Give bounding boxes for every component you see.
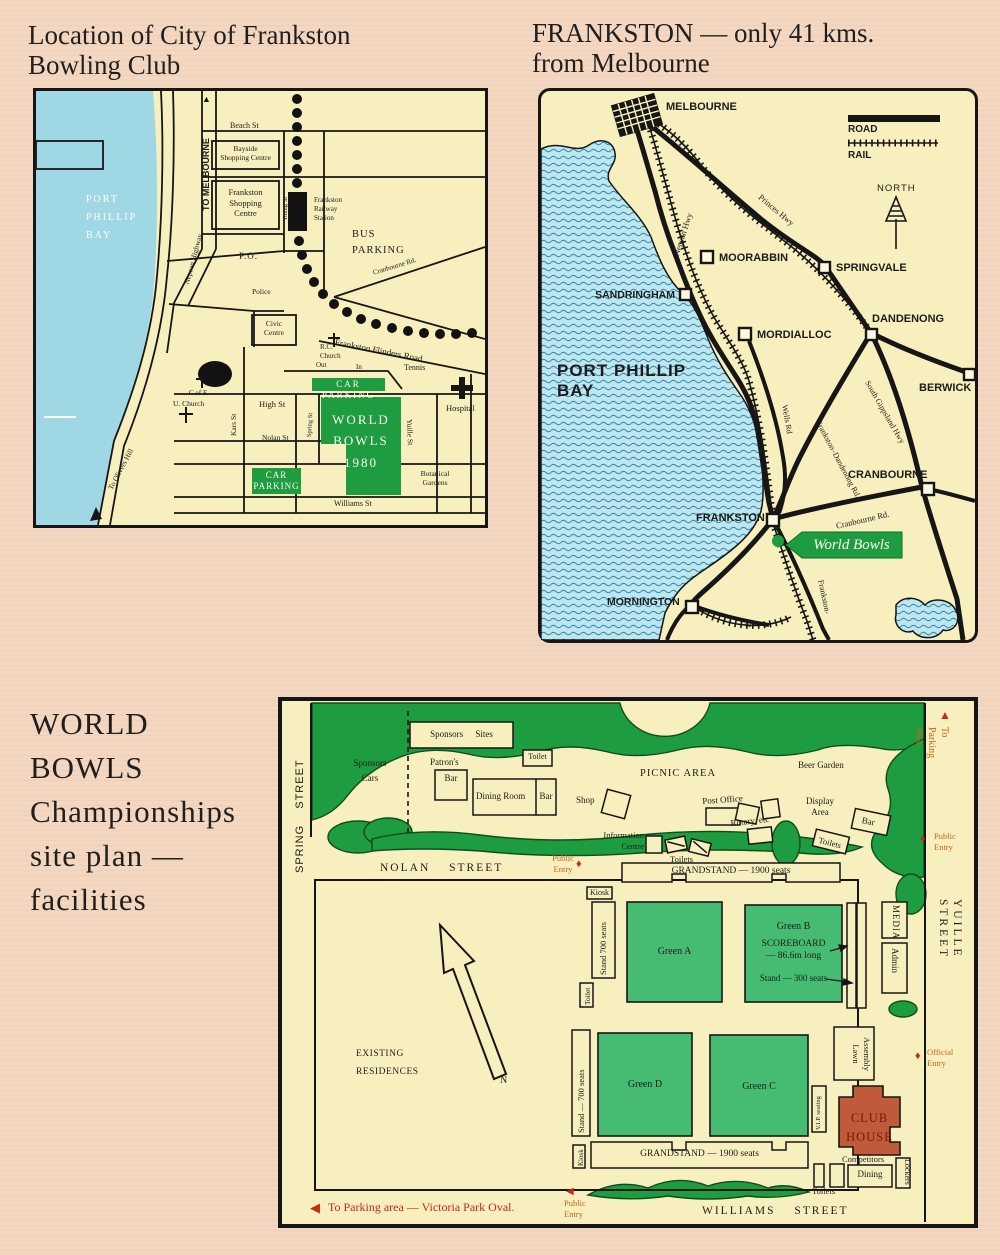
map2-label-mordialloc: MORDIALLOC: [757, 329, 832, 343]
map2-label-cranbourne: CRANBOURNE: [848, 469, 927, 483]
siteplan-public-entry-right-label: Public Entry: [934, 831, 956, 852]
map2-label-north: NORTH: [877, 183, 916, 195]
map1-label-po: P.O.: [239, 251, 258, 262]
map1-label-frankston-shopping: Frankston Shopping Centre: [212, 187, 279, 219]
siteplan-public-entry-bottom-arrow-icon: ◀: [566, 1187, 574, 1197]
map1-label-high-st: High St: [259, 399, 285, 410]
siteplan-grandstand-north-label: GRANDSTAND — 1900 seats: [622, 866, 840, 878]
siteplan-label-patrons-bar: Bar: [435, 773, 467, 784]
siteplan-label-kiosk-south: Kiosk: [577, 1149, 586, 1166]
map1-label-police: Police: [252, 287, 271, 296]
siteplan-public-entry-top-label: Public Entry: [548, 853, 578, 874]
map1-label-to-melbourne: TO MELBOURNE: [201, 138, 212, 211]
siteplan-official-entry-marker-icon: ♦: [915, 1051, 921, 1062]
siteplan-label-lockers: Lockers: [902, 1159, 912, 1185]
map1-label-car-parking-lower: CAR PARKING: [252, 470, 301, 493]
siteplan-title: WORLD BOWLS Championships site plan — fa…: [30, 702, 236, 922]
map1-label-beach-st: Beach St: [230, 121, 259, 131]
siteplan-label-scoreboard: SCOREBOARD — 86.6m long: [745, 939, 842, 963]
map2-label-dandenong: DANDENONG: [872, 313, 944, 327]
siteplan-label-stand-700-north: Stand 700 seats: [598, 922, 609, 975]
siteplan-label-williams-street: WILLIAMS STREET: [702, 1204, 849, 1218]
map2-title-line1: FRANKSTON — only 41 kms.: [532, 18, 874, 49]
siteplan-to-parking-bottom-arrow-icon: ◀: [310, 1201, 320, 1214]
siteplan-public-entry-bottom-label: Public Entry: [564, 1198, 586, 1219]
map1-label-hospital: Hospital: [446, 403, 475, 414]
map2-panel: MELBOURNE MOORABBIN SPRINGVALE SANDRINGH…: [538, 88, 978, 643]
siteplan-label-toilets-south: Toilets: [812, 1186, 835, 1197]
map1-label-civic-centre: Civic Centre: [252, 319, 296, 338]
siteplan-label-media: MEDIA: [890, 905, 901, 940]
map1-label-kars-st: Kars St: [229, 414, 238, 436]
map2-label-bay: PORT PHILLIP BAY: [557, 361, 686, 402]
map2-north-arrow: [886, 197, 906, 249]
siteplan-label-shop: Shop: [576, 795, 595, 806]
map1-label-out: Out: [316, 361, 327, 370]
map1-label-in: In: [356, 363, 362, 372]
siteplan-label-sponsors-sites: Sponsors Sites: [410, 729, 513, 740]
siteplan-public-entry-right-marker-icon: ♦: [920, 834, 926, 845]
siteplan-label-info-centre: Information Centre: [586, 830, 644, 851]
brochure-page: Location of City of Frankston Bowling Cl…: [0, 0, 1000, 1255]
siteplan-label-beer-garden: Beer Garden: [798, 760, 844, 771]
siteplan-label-kiosk-north: Kiosk: [587, 888, 612, 898]
siteplan-to-parking-right-label: To Parking area: [913, 727, 951, 758]
map2-label-sandringham: SANDRINGHAM: [589, 289, 675, 302]
map2-legend-road-swatch: [848, 115, 940, 122]
map1-label-bayside: Bayside Shopping Centre: [212, 144, 279, 163]
map2-label-springvale: SPRINGVALE: [836, 262, 907, 276]
siteplan-label-yuille-street: YUILLE STREET: [935, 899, 964, 959]
siteplan-label-display-area: Display Area: [800, 796, 840, 819]
map1-label-u-church: U. Church: [173, 399, 204, 408]
map1-label-spring-st: Spring St: [306, 413, 315, 438]
map2-label-mornington: MORNINGTON: [607, 596, 680, 609]
siteplan-label-patrons: Patron's: [430, 757, 459, 768]
map1-label-railway-station: Frankston Railway Station: [314, 196, 342, 222]
siteplan-label-sponsors-cars: Sponsors Cars: [340, 756, 400, 787]
siteplan-label-toilet-north: Toilet: [523, 752, 552, 762]
siteplan-label-green-d: Green D: [598, 1079, 692, 1092]
map2-legend-road-label: ROAD: [848, 124, 877, 137]
siteplan-label-spring-street: SPRING STREET: [294, 759, 308, 873]
map1-label-c-of-e: C of E: [189, 389, 207, 398]
map1-label-bay: PORT PHILLIP BAY: [86, 191, 146, 245]
siteplan-official-entry-label: Official Entry: [927, 1047, 953, 1068]
siteplan-panel: SPRING STREET NOLAN STREET YUILLE STREET…: [278, 697, 978, 1228]
siteplan-label-nolan-street: NOLAN STREET: [380, 861, 503, 875]
map2-label-frankston: FRANKSTON: [696, 512, 765, 526]
siteplan-to-parking-bottom-label: To Parking area — Victoria Park Oval.: [328, 1200, 515, 1215]
map1-railway-station-block: [288, 192, 307, 231]
siteplan-label-green-b: Green B: [745, 921, 842, 934]
map1-label-world-bowls: WORLD BOWLS 1980: [321, 409, 401, 473]
map2-title-line2: from Melbourne: [532, 48, 710, 79]
map2-label-moorabbin: MOORABBIN: [719, 252, 788, 266]
map1-label-williams-st: Williams St: [334, 499, 372, 509]
map2-world-bowls-label: World Bowls: [799, 536, 904, 555]
map1-oval: [198, 361, 232, 387]
siteplan-greens: [598, 902, 842, 1136]
map1-panel: PORT PHILLIP BAY ▲ TO MELBOURNE Beach St…: [33, 88, 488, 528]
siteplan-label-existing-residences: EXISTING RESIDENCES: [356, 1045, 419, 1081]
siteplan-grandstand-south-label: GRANDSTAND — 1900 seats: [591, 1149, 808, 1161]
siteplan-public-entry-top-marker-icon: ♦: [576, 859, 582, 870]
map1-label-nolan-st: Nolan St: [262, 433, 288, 442]
siteplan-label-north-n: N: [500, 1075, 507, 1088]
siteplan-label-dining-room: Dining Room: [476, 791, 525, 802]
map1-label-tennis: Tennis: [404, 363, 425, 373]
siteplan-label-dining-bar: Bar: [536, 791, 556, 802]
siteplan-label-picnic-area: PICNIC AREA: [640, 767, 716, 780]
siteplan-label-dining: Dining: [848, 1169, 892, 1180]
siteplan-to-parking-right-arrow-icon: ▲: [939, 709, 951, 721]
map1-label-car-parking-top: CAR PARKING: [312, 379, 385, 402]
siteplan-label-bar-east: Bar: [861, 815, 876, 829]
siteplan-label-toilets-mid: Toilets: [670, 854, 693, 865]
map1-label-yuille-st: Yuille St: [405, 419, 415, 445]
map1-label-botanical: Botanical Gardens: [412, 469, 458, 488]
siteplan-label-competitors: Competitors: [842, 1154, 884, 1165]
siteplan-label-green-c: Green C: [710, 1081, 808, 1094]
map1-hospital-cross: [451, 377, 473, 399]
map1-water: [36, 91, 157, 525]
map1-title-line2: Bowling Club: [28, 50, 180, 81]
siteplan-label-toilet-west: Toilet: [583, 988, 592, 1005]
siteplan-label-stand-300: Stand — 300 seats: [745, 973, 842, 984]
map1-label-rc-church: R.C. Church: [320, 343, 341, 361]
map1-label-bus-parking: BUS PARKING: [352, 227, 405, 259]
siteplan-label-green-a: Green A: [627, 946, 722, 959]
siteplan-clubhouse-label: CLUB HOUSE: [839, 1109, 900, 1147]
siteplan-label-admin: Admin: [889, 948, 900, 973]
map1-title-line1: Location of City of Frankston: [28, 20, 350, 51]
map2-label-melbourne: MELBOURNE: [666, 101, 737, 115]
siteplan-label-assembly-lawn: Assembly Lawn: [851, 1031, 872, 1077]
map1-label-young-st: Young St: [282, 197, 290, 221]
siteplan-north-arrow: [440, 925, 506, 1079]
siteplan-label-vip: V.I.P. seating: [815, 1096, 823, 1130]
map2-label-berwick: BERWICK: [919, 382, 971, 396]
map1-to-melbourne-arrow-icon: ▲: [202, 95, 211, 104]
siteplan-label-stand-700-south: Stand — 700 seats: [576, 1069, 587, 1133]
map2-legend-rail-label: RAIL: [848, 150, 871, 163]
